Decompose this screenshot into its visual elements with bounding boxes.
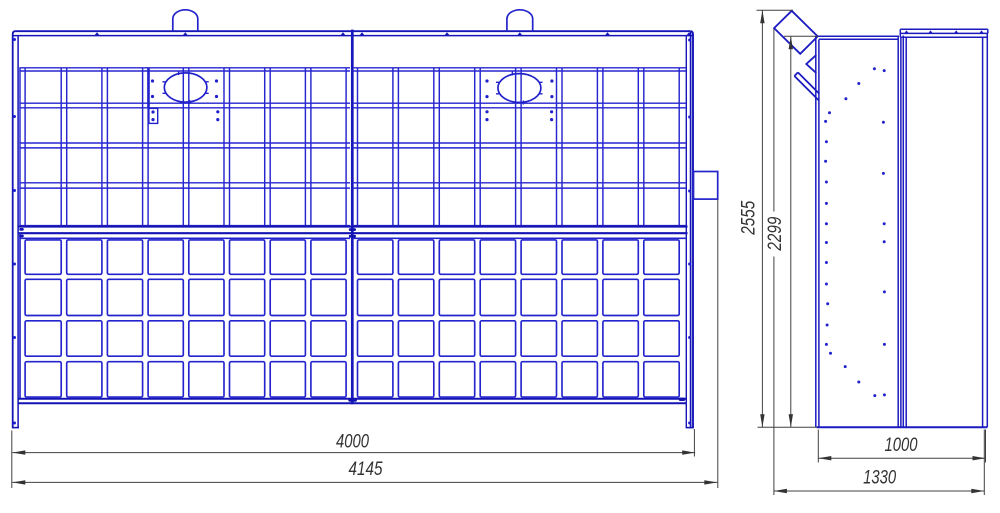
svg-text:4145: 4145 bbox=[349, 459, 383, 480]
svg-text:2555: 2555 bbox=[739, 200, 760, 235]
svg-text:1000: 1000 bbox=[885, 435, 918, 456]
svg-text:1330: 1330 bbox=[863, 468, 896, 489]
svg-text:2299: 2299 bbox=[765, 216, 786, 251]
svg-text:4000: 4000 bbox=[336, 431, 369, 452]
